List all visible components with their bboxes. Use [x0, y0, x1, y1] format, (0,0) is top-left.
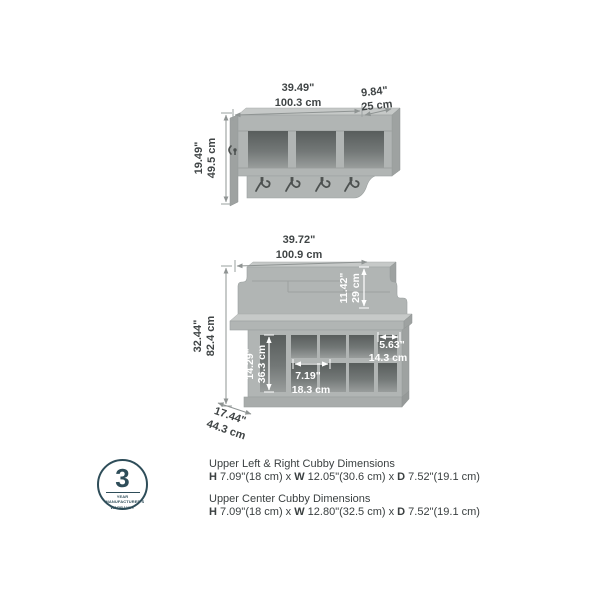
d-label: D — [397, 471, 405, 483]
bench-seat-front — [230, 321, 404, 330]
note-title: Upper Left & Right Cubby Dimensions — [209, 458, 539, 471]
warranty-badge: 3 YEAR MANUFACTURER'S WARRANTY — [97, 459, 148, 510]
h-label: H — [209, 506, 217, 518]
bench-width-label-cm: 100.9 cm — [276, 249, 323, 261]
warranty-years: 3 — [115, 465, 129, 491]
bench-seat-top — [230, 314, 412, 321]
note-upper-left-right-cubby: Upper Left & Right Cubby Dimensions H 7.… — [209, 458, 539, 484]
warranty-line1: YEAR MANUFACTURER'S — [106, 494, 145, 504]
shelf-right-side — [392, 108, 400, 176]
h-value: 7.09"(18 cm) x — [217, 471, 294, 483]
w-label: W — [294, 506, 304, 518]
note-dimensions: H 7.09"(18 cm) x W 12.05"(30.6 cm) x D 7… — [209, 471, 539, 484]
d-label: D — [397, 506, 405, 518]
bench-height-label-in: 32.44" — [192, 320, 204, 353]
h-value: 7.09"(18 cm) x — [217, 506, 294, 518]
w-value: 12.05"(30.6 cm) x — [305, 471, 398, 483]
warranty-text: YEAR MANUFACTURER'S WARRANTY — [106, 492, 140, 510]
bench-height-label-cm: 82.4 cm — [205, 316, 217, 357]
note-dimensions: H 7.09"(18 cm) x W 12.80"(32.5 cm) x D 7… — [209, 506, 539, 519]
bench-cubby-upper — [291, 335, 317, 358]
w-label: W — [294, 471, 304, 483]
wall-shelf-illustration — [229, 108, 400, 206]
right-cubby-width-label-cm: 14.3 cm — [369, 352, 408, 364]
bench-cubby-lower-right — [378, 363, 397, 392]
bench-cubby-lower — [349, 363, 374, 392]
shelf-cubby-center — [296, 131, 336, 168]
left-cubby-height-label-in: 14.29" — [244, 348, 256, 379]
d-value: 7.52"(19.1 cm) — [405, 506, 480, 518]
d-value: 7.52"(19.1 cm) — [405, 471, 480, 483]
center-cubby-width-label-in: 7.19" — [295, 370, 320, 382]
center-cubby-width-label-cm: 18.3 cm — [292, 384, 331, 396]
shelf-cubby-right — [344, 131, 384, 168]
shelf-width-label-cm: 100.3 cm — [275, 97, 322, 109]
shelf-height-label-in: 19.49" — [193, 142, 205, 175]
right-cubby-width-label-in: 5.63" — [379, 339, 404, 351]
note-title: Upper Center Cubby Dimensions — [209, 493, 539, 506]
left-cubby-height-label-cm: 36.3 cm — [256, 345, 268, 384]
bench-cubby-upper — [320, 335, 346, 358]
cubby-dimension-notes: Upper Left & Right Cubby Dimensions H 7.… — [209, 458, 539, 528]
w-value: 12.80"(32.5 cm) x — [305, 506, 398, 518]
shelf-height-label-cm: 49.5 cm — [206, 138, 218, 179]
backrest-height-label-cm: 29 cm — [350, 273, 362, 303]
backrest-height-label-in: 11.42" — [338, 273, 350, 304]
h-label: H — [209, 471, 217, 483]
bench-base — [244, 397, 402, 407]
bench-backrest — [238, 267, 407, 320]
warranty-line2: WARRANTY — [111, 505, 135, 510]
bench-backrest-top-face — [247, 262, 396, 267]
note-upper-center-cubby: Upper Center Cubby Dimensions H 7.09"(18… — [209, 493, 539, 519]
shelf-depth-label-in: 9.84" — [361, 85, 389, 100]
shelf-cubby-left — [248, 131, 288, 168]
shelf-width-label-in: 39.49" — [282, 82, 315, 94]
bench-width-label-in: 39.72" — [283, 234, 316, 246]
product-dimension-diagram: 39.49" 100.3 cm 9.84" 25 cm 19.49" 49.5 … — [0, 0, 600, 600]
shelf-left-side — [230, 115, 238, 206]
